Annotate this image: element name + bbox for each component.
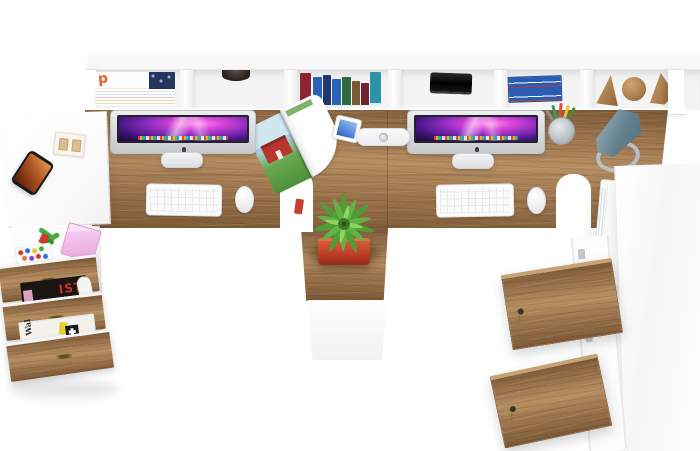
shelf-compartments: p [85,70,700,110]
center-pedestal-cabinet [305,300,389,360]
tablet-screen [336,119,357,139]
barn-door [275,150,283,160]
apple-logo-icon [475,147,479,152]
blue-book-stack [508,75,563,103]
keyboard-right [436,183,515,217]
key-tassel [510,413,513,423]
shelf-top-surface [85,0,700,70]
mouse-right [527,187,546,214]
wooden-disc [622,77,646,101]
keyboard-keys [440,187,510,213]
shelf-divider [388,70,401,110]
shelf-divider [180,70,193,110]
magazine-stack: p [95,72,175,105]
speaker [430,72,473,94]
left-drawer-unit: IST Wal [0,222,132,407]
cassette-pad [71,139,81,152]
imac-right-screen [414,115,538,143]
book-spine [352,81,360,105]
shelf-divider [580,70,593,110]
book-spine [323,75,331,105]
keyboard-keys [150,187,218,212]
navy-book [149,72,175,89]
scene-office-top-view: p [0,0,700,451]
imac-left-stand [161,152,203,168]
book-spine [370,72,381,105]
magazine-cover: p [95,72,175,89]
wooden-bookend [594,74,623,107]
potted-plant [301,184,387,266]
key-tassel [517,315,520,325]
barn-photo [260,135,293,164]
mouse-left [235,186,254,213]
imac-left-dock [138,136,228,140]
book-spine [361,83,369,105]
right-cabinet-body [614,163,700,451]
pencil-cup [544,106,580,148]
cassette-pad [58,138,68,151]
hinge [578,249,586,260]
imac-left-screen [117,115,249,143]
dark-bowl [222,70,250,81]
imac-right-stand [452,153,494,169]
cup [548,117,575,145]
power-strip [356,128,410,146]
drawer-handle [56,353,72,359]
cassette-holder [53,131,86,157]
imac-right-dock [434,136,518,140]
magazine-page-edges [95,89,175,105]
power-socket [379,133,388,142]
imac-right [407,110,545,154]
imac-left [110,110,256,154]
drawer-unit-shadow [8,380,120,398]
magazine-logo-text: p [97,72,108,87]
keyboard-left [146,183,223,216]
book-spine [342,77,351,105]
shelf-divider [494,70,507,110]
newspaper-title-text: Wal [22,319,34,337]
desk-cutout-right [556,174,591,232]
book-spine [332,79,341,105]
